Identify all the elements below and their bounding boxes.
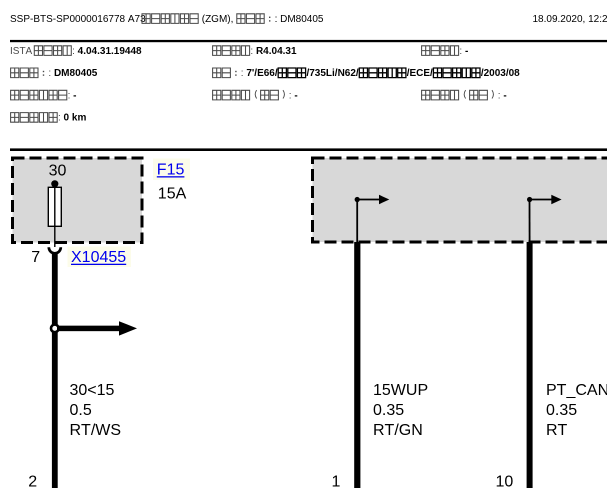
svg-text:X10455: X10455 — [71, 249, 126, 266]
svg-text:: DM80405: : DM80405 — [275, 14, 324, 25]
svg-text:SSP-BTS-SP0000016778 A73: SSP-BTS-SP0000016778 A73 — [10, 14, 148, 25]
svg-text:30<15: 30<15 — [70, 382, 115, 399]
svg-text:0.5: 0.5 — [70, 402, 92, 419]
svg-text:2: 2 — [28, 474, 37, 488]
svg-text:F15: F15 — [157, 162, 185, 179]
svg-text:1: 1 — [332, 474, 341, 488]
svg-text:4.04.31.19448: 4.04.31.19448 — [78, 46, 142, 57]
svg-text:/ECE/: /ECE/ — [407, 68, 433, 79]
svg-text:RT: RT — [546, 422, 568, 439]
svg-text:RT/WS: RT/WS — [70, 422, 122, 439]
svg-text:ISTA: ISTA — [10, 46, 35, 57]
svg-text:7: 7 — [31, 249, 40, 266]
svg-text:10: 10 — [496, 474, 514, 488]
svg-text:18.09.2020, 12:23: 18.09.2020, 12:23 — [533, 14, 607, 25]
svg-text:/735Li/N62/: /735Li/N62/ — [306, 68, 358, 79]
svg-text:R4.04.31: R4.04.31 — [256, 46, 297, 57]
svg-text:-: - — [465, 46, 468, 57]
svg-text:7'/E66/: 7'/E66/ — [246, 68, 278, 79]
svg-text:30: 30 — [49, 163, 67, 180]
svg-text:-: - — [73, 90, 76, 101]
svg-text:DM80405: DM80405 — [54, 68, 98, 79]
svg-text:0 km: 0 km — [64, 113, 87, 124]
svg-text:(ZGM),: (ZGM), — [199, 14, 236, 25]
svg-text:15WUP: 15WUP — [373, 382, 428, 399]
svg-text:-: - — [294, 90, 297, 101]
svg-text:0.35: 0.35 — [546, 402, 577, 419]
svg-text:15A: 15A — [158, 185, 187, 202]
svg-text:/2003/08: /2003/08 — [481, 68, 520, 79]
svg-text:-: - — [503, 90, 506, 101]
svg-text:0.35: 0.35 — [373, 402, 404, 419]
svg-text:RT/GN: RT/GN — [373, 422, 423, 439]
svg-text:PT_CAN: PT_CAN — [546, 382, 607, 399]
